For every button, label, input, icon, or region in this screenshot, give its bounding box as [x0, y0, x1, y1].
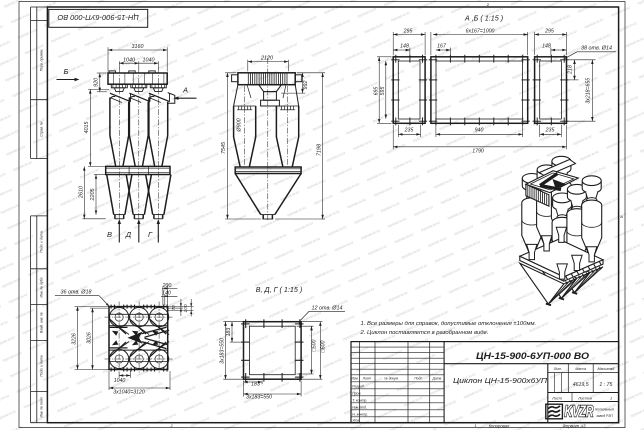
svg-text:12 отв. Ø14: 12 отв. Ø14 [312, 306, 343, 312]
svg-text:595: 595 [380, 87, 386, 96]
svg-text:KVZR: KVZR [565, 404, 595, 421]
svg-text:218: 218 [568, 65, 574, 75]
svg-text:Ø900: Ø900 [236, 118, 242, 132]
svg-text:Инв. № подл.: Инв. № подл. [40, 396, 44, 417]
svg-text:38 отв. Ø14: 38 отв. Ø14 [581, 46, 612, 52]
svg-text:Подп. и дата: Подп. и дата [40, 231, 44, 252]
svg-text:А: А [619, 214, 623, 219]
svg-text:148: 148 [400, 44, 409, 50]
svg-text:3226: 3226 [71, 333, 77, 345]
svg-text:1040: 1040 [114, 378, 126, 384]
svg-text:6х167=1000: 6х167=1000 [466, 29, 495, 35]
svg-text:Формат А3: Формат А3 [563, 423, 587, 428]
svg-text:2205: 2205 [90, 188, 96, 202]
svg-text:Инв. № дубл.: Инв. № дубл. [40, 277, 44, 298]
svg-text:920: 920 [94, 78, 100, 87]
svg-text:Нач.отд.: Нач.отд. [352, 405, 367, 409]
svg-text:1040: 1040 [123, 58, 135, 64]
svg-text:Подп. и дата: Подп. и дата [40, 355, 44, 376]
svg-text:№ докум.: № докум. [384, 377, 399, 381]
svg-text:1040: 1040 [143, 58, 155, 64]
svg-text:Циклон ЦН-15-900х6УП: Циклон ЦН-15-900х6УП [453, 378, 548, 385]
svg-text:7198: 7198 [316, 144, 322, 156]
svg-text:3х218=655: 3х218=655 [585, 78, 591, 104]
svg-text:940: 940 [475, 127, 484, 133]
svg-text:3х1040=3120: 3х1040=3120 [113, 390, 145, 396]
svg-text:295: 295 [403, 29, 413, 35]
svg-text:В, Д, Г ( 1:15 ): В, Д, Г ( 1:15 ) [256, 285, 303, 294]
svg-text:А: А [182, 86, 188, 95]
svg-text:4619,5: 4619,5 [573, 382, 589, 388]
svg-text:2120: 2120 [260, 56, 273, 62]
svg-text:А ,Б ( 1:15 ): А ,Б ( 1:15 ) [464, 14, 503, 23]
svg-text:Дата: Дата [432, 377, 442, 381]
svg-text:4015: 4015 [84, 121, 90, 134]
svg-text:235: 235 [545, 127, 555, 133]
svg-text:Лист: Лист [362, 377, 372, 381]
svg-text:1. Все размеры для справок, до: 1. Все размеры для справок, допустимые о… [361, 321, 537, 327]
svg-text:1: 1 [475, 424, 477, 428]
svg-text:3026: 3026 [86, 332, 92, 344]
svg-text:Б: Б [64, 67, 69, 76]
svg-text:2610: 2610 [78, 186, 84, 199]
svg-text:36 отв. Ø18: 36 отв. Ø18 [61, 290, 92, 296]
svg-text:Взам. инв. №: Взам. инв. № [40, 312, 44, 333]
svg-text:Копировал: Копировал [489, 423, 510, 428]
svg-text:235: 235 [404, 127, 414, 133]
svg-text:140: 140 [162, 291, 171, 297]
svg-text:ЦН-15-900-6УП-000 ВО: ЦН-15-900-6УП-000 ВО [57, 13, 139, 22]
svg-text:1 : 75: 1 : 75 [599, 382, 612, 388]
svg-text:Лист: Лист [551, 396, 562, 400]
svg-text:7545: 7545 [221, 141, 227, 154]
svg-text:Масса: Масса [575, 367, 586, 371]
svg-text:Разраб.: Разраб. [352, 384, 365, 388]
svg-text:992: 992 [303, 81, 309, 90]
svg-text:695: 695 [373, 87, 379, 96]
svg-text:Котельный: Котельный [595, 408, 614, 412]
svg-text:Изм.: Изм. [351, 377, 358, 381]
svg-text:Утв.: Утв. [352, 419, 360, 423]
svg-text:3х183=550: 3х183=550 [246, 395, 272, 401]
svg-text:70: 70 [171, 305, 177, 311]
svg-text:завод РЗП: завод РЗП [595, 414, 613, 418]
svg-text:2: 2 [170, 424, 173, 428]
svg-text:Масштаб: Масштаб [598, 367, 616, 371]
svg-text:Листов: Листов [577, 396, 592, 400]
svg-text:Лит.: Лит. [553, 367, 562, 371]
svg-text:Н. контр.: Н. контр. [352, 412, 368, 416]
svg-text:183: 183 [226, 328, 232, 337]
svg-text:Справ. №: Справ. № [40, 121, 44, 137]
svg-text:В: В [107, 230, 112, 239]
svg-text:295: 295 [544, 29, 554, 35]
svg-text:ЦН-15-900-6УП-000 ВО: ЦН-15-900-6УП-000 ВО [476, 351, 589, 361]
svg-text:Д: Д [125, 230, 132, 239]
svg-text:167: 167 [437, 44, 447, 50]
svg-text:2. Циклон поставляется в разоб: 2. Циклон поставляется в разобранном вид… [360, 330, 489, 336]
svg-text:100: 100 [183, 304, 189, 312]
svg-text:Т. контр.: Т. контр. [352, 398, 367, 402]
svg-text:148: 148 [542, 44, 551, 50]
svg-text:□600: □600 [320, 340, 326, 352]
svg-text:1: 1 [610, 396, 612, 400]
svg-text:Подп.: Подп. [414, 377, 423, 381]
svg-text:1790: 1790 [472, 148, 484, 154]
svg-text:Перв. примен.: Перв. примен. [40, 49, 44, 72]
svg-text:3х183=550: 3х183=550 [219, 338, 225, 364]
svg-text:183: 183 [251, 382, 260, 388]
svg-text:Пров.: Пров. [352, 391, 361, 395]
svg-text:□500: □500 [312, 339, 318, 351]
svg-text:3160: 3160 [132, 44, 144, 50]
